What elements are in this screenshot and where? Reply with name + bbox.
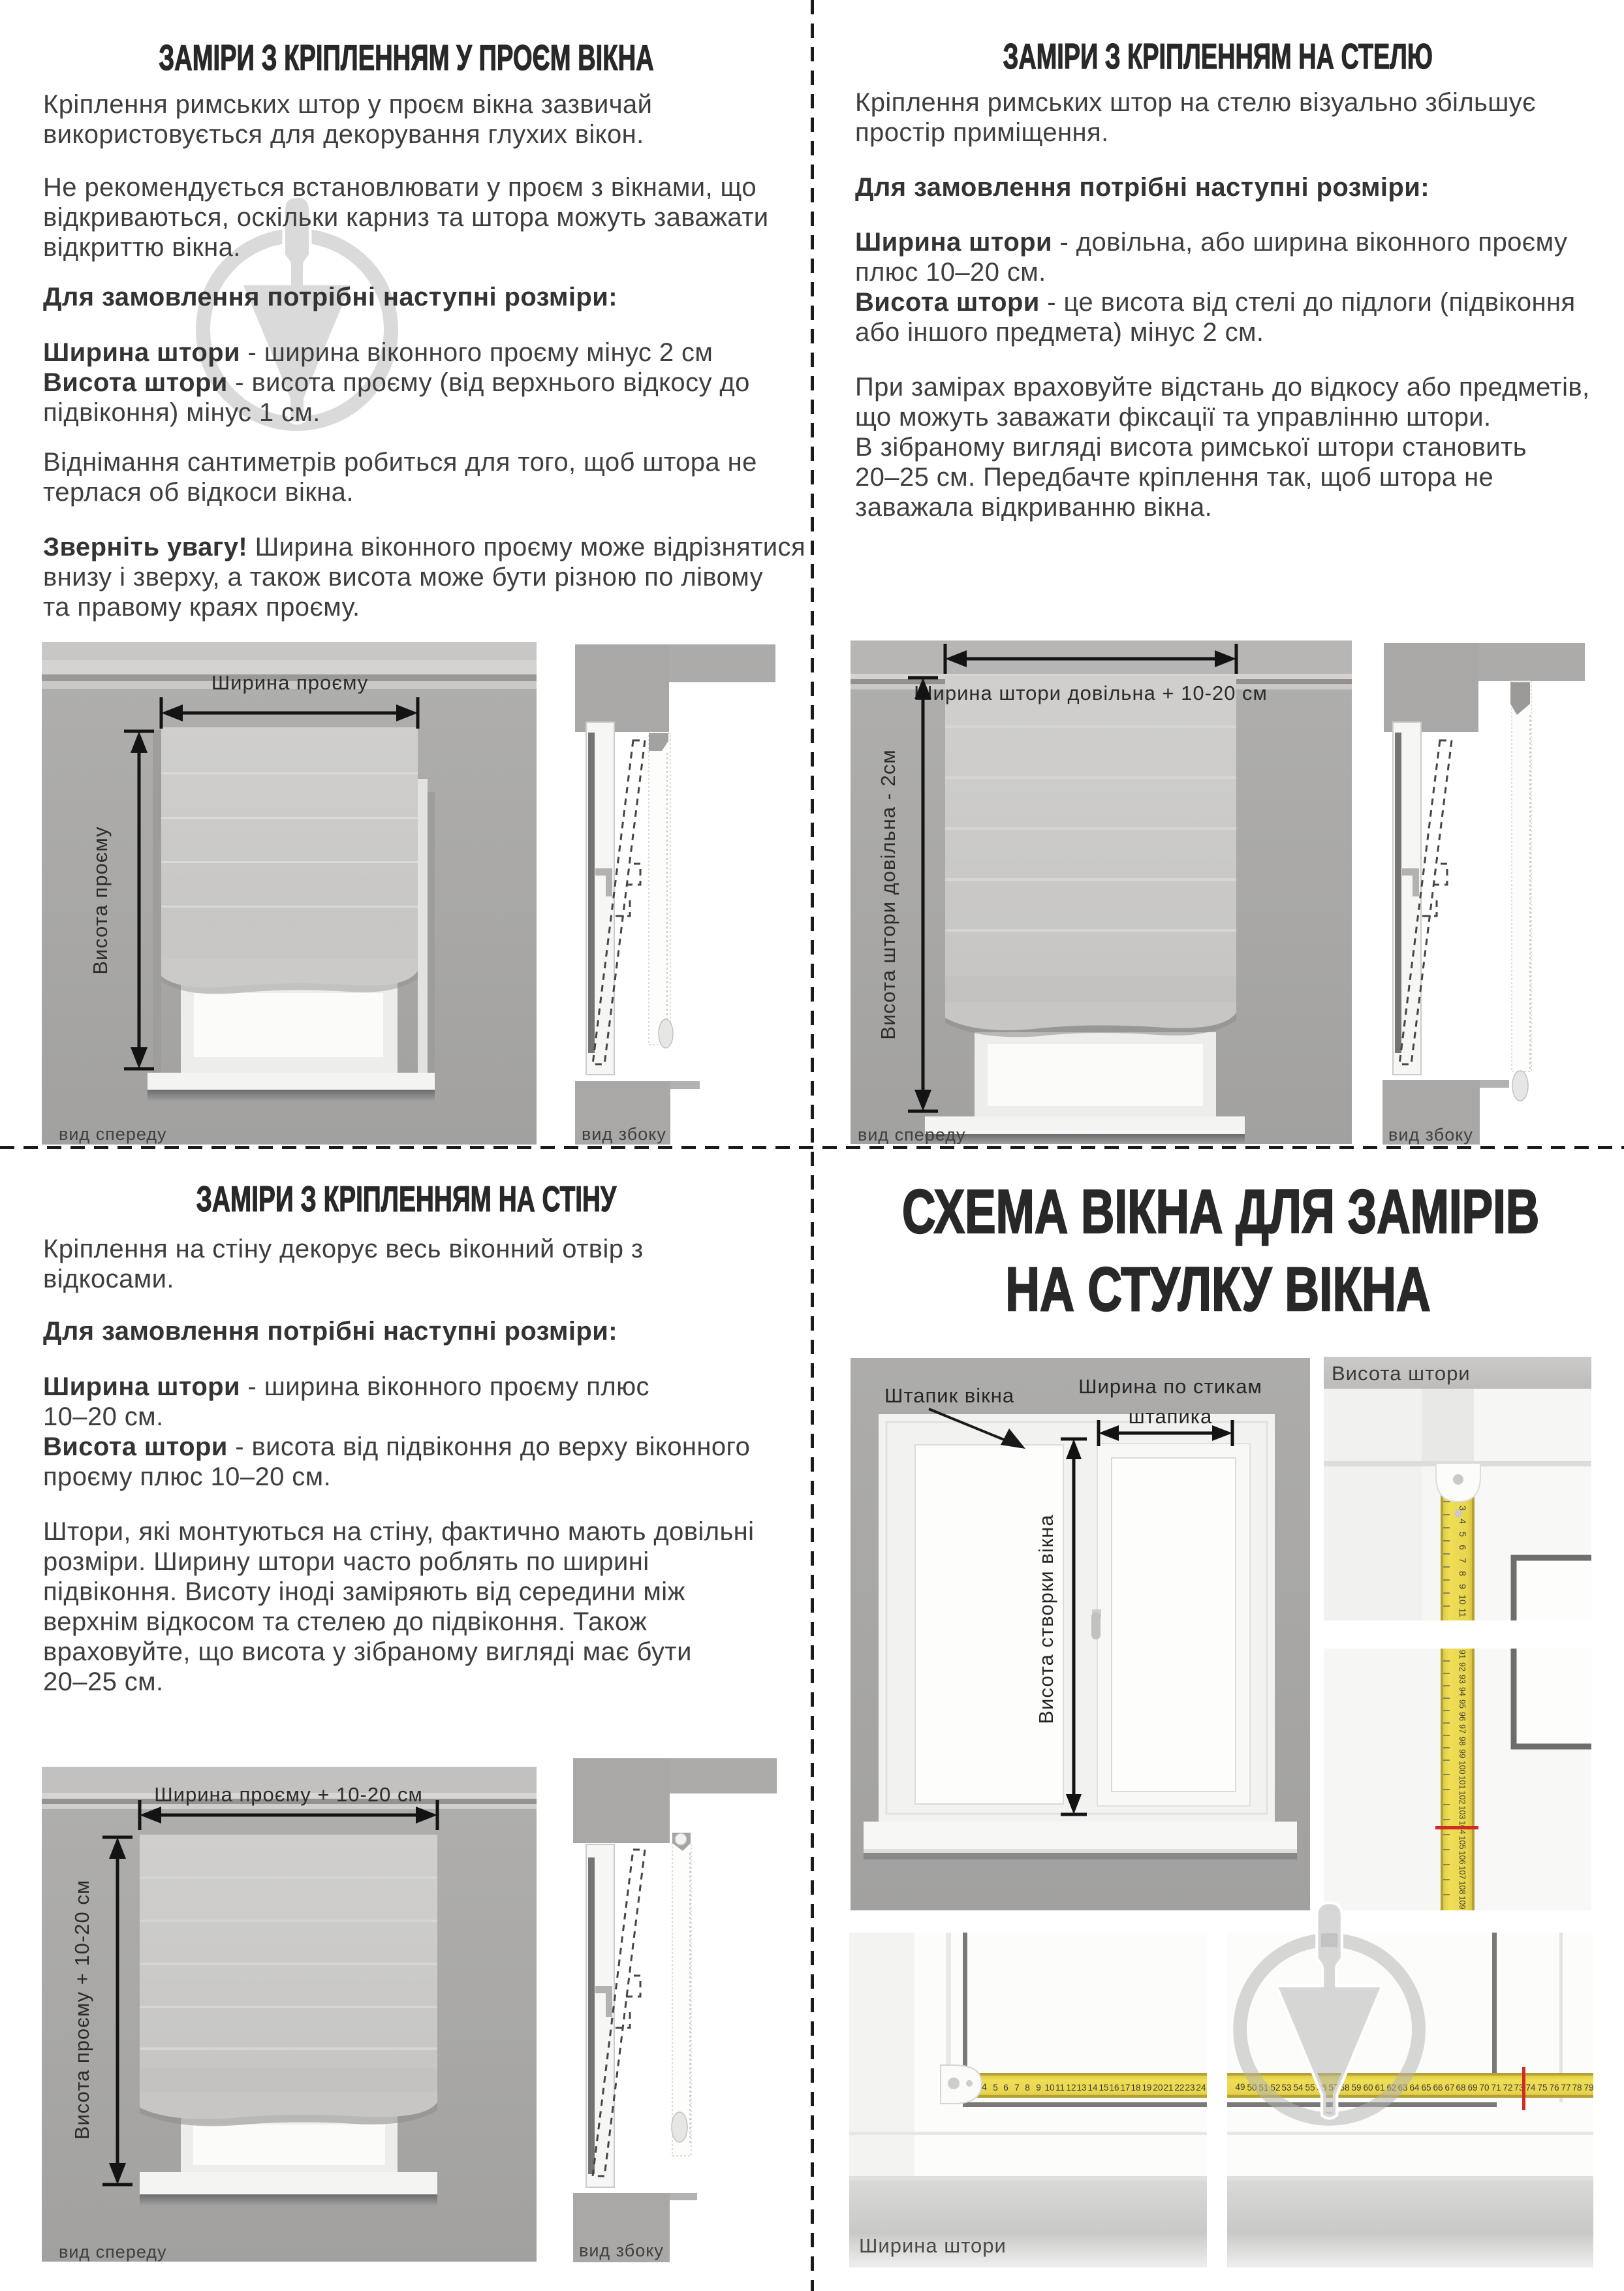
svg-text:10: 10 bbox=[1044, 2083, 1054, 2093]
svg-text:16: 16 bbox=[1109, 2083, 1119, 2093]
svg-text:72: 72 bbox=[1503, 2083, 1512, 2093]
svg-text:69: 69 bbox=[1467, 2083, 1477, 2093]
svg-text:15: 15 bbox=[1099, 2083, 1108, 2093]
svg-text:7: 7 bbox=[1014, 2083, 1020, 2093]
svg-text:вид збоку: вид збоку bbox=[582, 1124, 666, 1144]
svg-text:6: 6 bbox=[1458, 1545, 1468, 1550]
svg-text:14: 14 bbox=[1087, 2083, 1098, 2093]
svg-text:99: 99 bbox=[1458, 1749, 1467, 1758]
svg-text:12: 12 bbox=[1066, 2083, 1076, 2093]
svg-text:18: 18 bbox=[1131, 2083, 1140, 2093]
svg-text:106: 106 bbox=[1458, 1851, 1467, 1865]
svg-text:77: 77 bbox=[1561, 2083, 1570, 2093]
svg-text:76: 76 bbox=[1549, 2083, 1559, 2093]
svg-text:вид спереду: вид спереду bbox=[858, 1125, 966, 1144]
svg-text:Ширина штори довільна + 10-20: Ширина штори довільна + 10-20 см bbox=[914, 682, 1268, 704]
svg-text:98: 98 bbox=[1458, 1737, 1467, 1746]
svg-text:67: 67 bbox=[1444, 2083, 1454, 2093]
svg-text:19: 19 bbox=[1142, 2083, 1151, 2093]
svg-text:3: 3 bbox=[1458, 1506, 1468, 1511]
svg-text:4: 4 bbox=[1458, 1519, 1468, 1524]
svg-text:11: 11 bbox=[1458, 1608, 1468, 1618]
svg-text:9: 9 bbox=[1458, 1584, 1468, 1589]
svg-text:5: 5 bbox=[993, 2083, 998, 2093]
svg-text:94: 94 bbox=[1458, 1687, 1467, 1696]
svg-text:7: 7 bbox=[1458, 1558, 1468, 1563]
svg-text:22: 22 bbox=[1174, 2083, 1184, 2093]
svg-text:68: 68 bbox=[1456, 2083, 1465, 2093]
svg-text:79: 79 bbox=[1584, 2083, 1593, 2093]
svg-text:Висота проєму: Висота проєму bbox=[89, 826, 112, 974]
svg-text:вид спереду: вид спереду bbox=[59, 1124, 167, 1144]
svg-text:4: 4 bbox=[982, 2082, 987, 2092]
svg-text:вид збоку: вид збоку bbox=[1388, 1125, 1473, 1145]
svg-text:21: 21 bbox=[1163, 2083, 1173, 2093]
svg-text:Висота штори довільна - 2см: Висота штори довільна - 2см bbox=[877, 749, 899, 1039]
svg-text:74: 74 bbox=[1525, 2083, 1536, 2093]
svg-text:108: 108 bbox=[1458, 1881, 1467, 1895]
svg-text:10: 10 bbox=[1458, 1594, 1468, 1605]
svg-text:23: 23 bbox=[1185, 2083, 1195, 2093]
svg-text:75: 75 bbox=[1537, 2083, 1547, 2093]
svg-text:штапика: штапика bbox=[1129, 1405, 1213, 1428]
svg-text:20: 20 bbox=[1153, 2083, 1163, 2093]
svg-text:Ширина проєму: Ширина проєму bbox=[211, 671, 369, 694]
svg-text:101: 101 bbox=[1458, 1776, 1467, 1790]
svg-text:71: 71 bbox=[1491, 2083, 1501, 2093]
svg-text:5: 5 bbox=[1458, 1532, 1468, 1537]
svg-text:17: 17 bbox=[1120, 2083, 1130, 2093]
svg-text:70: 70 bbox=[1479, 2083, 1489, 2093]
svg-text:Ширина по стикам: Ширина по стикам bbox=[1078, 1375, 1262, 1398]
svg-text:100: 100 bbox=[1458, 1761, 1467, 1775]
svg-text:103: 103 bbox=[1458, 1806, 1467, 1820]
svg-text:Ширина проєму + 10-20 см: Ширина проєму + 10-20 см bbox=[154, 1783, 423, 1806]
svg-text:8: 8 bbox=[1025, 2083, 1030, 2093]
svg-text:Висота створки вікна: Висота створки вікна bbox=[1035, 1514, 1057, 1724]
svg-text:78: 78 bbox=[1572, 2083, 1582, 2093]
svg-text:92: 92 bbox=[1458, 1662, 1467, 1671]
svg-text:13: 13 bbox=[1076, 2083, 1086, 2093]
svg-text:вид спереду: вид спереду bbox=[59, 2242, 167, 2262]
svg-text:109: 109 bbox=[1458, 1896, 1467, 1910]
svg-text:102: 102 bbox=[1458, 1791, 1467, 1805]
svg-text:Висота штори: Висота штори bbox=[1332, 1362, 1471, 1385]
svg-text:Штапик вікна: Штапик вікна bbox=[884, 1384, 1014, 1407]
svg-text:93: 93 bbox=[1458, 1675, 1467, 1684]
svg-text:9: 9 bbox=[1036, 2083, 1041, 2093]
svg-text:107: 107 bbox=[1458, 1866, 1467, 1880]
svg-text:95: 95 bbox=[1458, 1699, 1467, 1709]
svg-text:6: 6 bbox=[1003, 2083, 1008, 2093]
svg-text:24: 24 bbox=[1196, 2083, 1206, 2093]
svg-text:Ширина штори: Ширина штори bbox=[859, 2234, 1007, 2257]
svg-text:97: 97 bbox=[1458, 1724, 1467, 1733]
svg-text:8: 8 bbox=[1458, 1571, 1468, 1576]
svg-text:105: 105 bbox=[1458, 1836, 1467, 1850]
svg-text:91: 91 bbox=[1458, 1650, 1467, 1659]
svg-text:Висота проєму + 10-20 см: Висота проєму + 10-20 см bbox=[70, 1880, 93, 2140]
svg-text:11: 11 bbox=[1055, 2083, 1065, 2093]
svg-text:96: 96 bbox=[1458, 1712, 1467, 1721]
svg-text:вид збоку: вид збоку bbox=[579, 2241, 664, 2260]
